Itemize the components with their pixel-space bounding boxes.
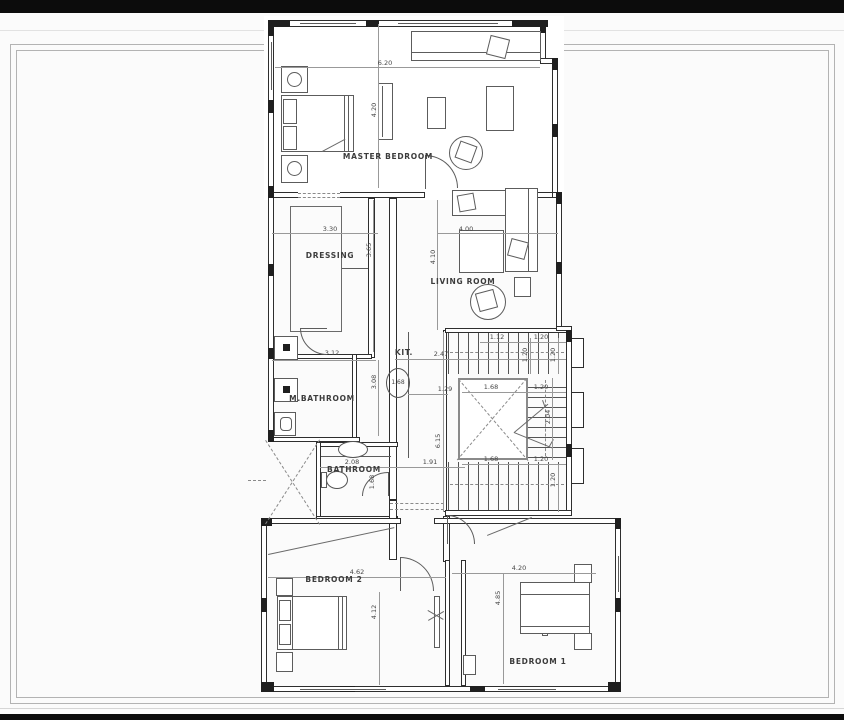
room-label-bathroom: BATHROOM (327, 465, 381, 474)
sheet-edge-line (0, 708, 844, 709)
column (615, 598, 621, 612)
wardrobe (378, 83, 393, 140)
sink-drain-icon (283, 386, 290, 393)
room-label-living-room: LIVING ROOM (431, 277, 496, 286)
dim-kit-circled: 1.68 (391, 379, 404, 386)
dim-line (558, 338, 559, 374)
landing-step (571, 448, 584, 484)
dim-living-width: 4.00 (459, 225, 473, 233)
coffee-table (486, 86, 514, 131)
column (608, 682, 621, 692)
room-label-master-bedroom: MASTER BEDROOM (343, 152, 433, 161)
column (268, 20, 274, 36)
dim-master-width: 6.20 (378, 59, 392, 67)
opening-dash (390, 509, 444, 510)
column (268, 264, 274, 276)
room-label-m-bathroom: M.BATHROOM (289, 394, 355, 403)
pillow (283, 126, 297, 150)
dim-line (528, 392, 566, 393)
opening-dash (390, 503, 444, 504)
column (261, 682, 274, 692)
dim-bedroom1-depth: 4.85 (494, 591, 502, 605)
dim-stairs-riser-left: 1.20 (521, 348, 529, 362)
pillow (283, 99, 297, 124)
ottoman (427, 97, 446, 129)
dim-mbath-depth: 3.08 (370, 375, 378, 389)
dim-line (503, 574, 504, 684)
dim-stairs-bottom-right: 1.20 (534, 455, 548, 463)
dim-dressing-width: 3.30 (323, 225, 337, 233)
dim-stairs-top-run: 1.12 (490, 333, 504, 341)
landing-step (571, 392, 584, 428)
dim-line (379, 592, 380, 685)
door-leaf (388, 472, 389, 496)
door-leaf-bedroom2 (434, 596, 440, 648)
column (470, 686, 485, 692)
dim-line (373, 200, 374, 352)
sofa (411, 31, 541, 61)
cabinet (463, 655, 476, 675)
column (552, 124, 558, 137)
dim-line (443, 332, 444, 512)
dim-line (378, 360, 379, 436)
dim-stairs-void-bottom: 1.68 (484, 455, 498, 463)
column (552, 58, 558, 70)
door-opening (390, 470, 396, 498)
column (268, 186, 274, 198)
dim-dressing-depth: 3.65 (365, 243, 373, 257)
dim-line (272, 233, 378, 234)
window (269, 42, 273, 90)
dim-line (275, 67, 540, 68)
dim-kit-corridor: 1.91 (423, 458, 437, 466)
dim-line (558, 464, 559, 512)
dim-stairs-void-top: 1.68 (484, 383, 498, 391)
room-label-bedroom-1: BEDROOM 1 (509, 657, 566, 666)
dim-stairs-riser-right: 1.20 (549, 348, 557, 362)
lamp-icon (287, 72, 302, 87)
landing-step (571, 338, 584, 368)
dim-bathroom-door: 1.68 (368, 475, 376, 489)
dim-bathroom-width: 2.08 (345, 458, 359, 466)
room-label-bedroom-2: BEDROOM 2 (305, 575, 362, 584)
dim-line (378, 24, 379, 188)
room-label-dressing: DRESSING (306, 251, 354, 260)
sink-drain-icon (283, 344, 290, 351)
cushion (457, 193, 477, 213)
dim-stairs-mid-height: 2.04 (544, 410, 552, 424)
column (566, 444, 572, 457)
dim-line (395, 359, 566, 360)
dim-line (552, 378, 553, 460)
wall (268, 192, 274, 442)
dim-stairs-mid-right: 1.20 (534, 383, 548, 391)
window (300, 21, 356, 26)
wall (261, 518, 401, 524)
dim-living-depth: 4.10 (429, 250, 437, 264)
dim-line (437, 200, 438, 330)
dim-line (452, 573, 596, 574)
dim-line (462, 464, 528, 465)
lamp-icon (287, 161, 302, 176)
dim-corridor-length: 6.15 (434, 434, 442, 448)
dim-line (530, 338, 531, 374)
void-dash (248, 480, 266, 481)
dim-line (408, 394, 448, 395)
dim-kit-width: 1.29 (438, 385, 452, 393)
tv-table (459, 230, 504, 273)
dim-line (272, 360, 376, 361)
window (300, 687, 386, 691)
window (616, 556, 620, 592)
window (498, 687, 556, 691)
dim-bedroom2-depth: 4.12 (370, 605, 378, 619)
side-table (514, 277, 531, 297)
sink-oval (338, 441, 368, 458)
wall (445, 510, 572, 516)
top-black-bar (0, 0, 844, 13)
room-label-kitchen: KIT. (395, 348, 413, 357)
pillow (279, 600, 291, 621)
toilet-tank (321, 472, 327, 488)
column (261, 598, 267, 612)
nightstand (276, 652, 293, 672)
dim-line (528, 464, 566, 465)
column (556, 262, 562, 274)
column (556, 192, 562, 204)
dim-mbath-width: 3.12 (325, 349, 339, 357)
dim-line (462, 392, 528, 393)
dim-master-depth: 4.20 (370, 103, 378, 117)
dim-bedroom2-width: 4.62 (350, 568, 364, 576)
dim-line (437, 233, 558, 234)
column (566, 330, 572, 342)
toilet-bowl (280, 417, 292, 431)
dim-stairs-top-right: 1.20 (534, 333, 548, 341)
wall (445, 560, 450, 686)
column (615, 518, 621, 529)
dim-stairs-bottom-riser: 1.20 (549, 473, 557, 487)
dim-line (480, 342, 524, 343)
window (398, 21, 498, 26)
column (268, 100, 274, 113)
dim-kit-to-stairs: 2.47 (434, 350, 448, 358)
wall (268, 192, 425, 198)
nightstand (574, 633, 592, 650)
bottom-black-bar (0, 714, 844, 720)
dim-bedroom1-width: 4.20 (512, 564, 526, 572)
floor-plan-sheet: MASTER BEDROOM DRESSING LIVING ROOM M.BA… (0, 0, 844, 720)
nightstand (276, 578, 293, 596)
pillow (279, 624, 291, 645)
